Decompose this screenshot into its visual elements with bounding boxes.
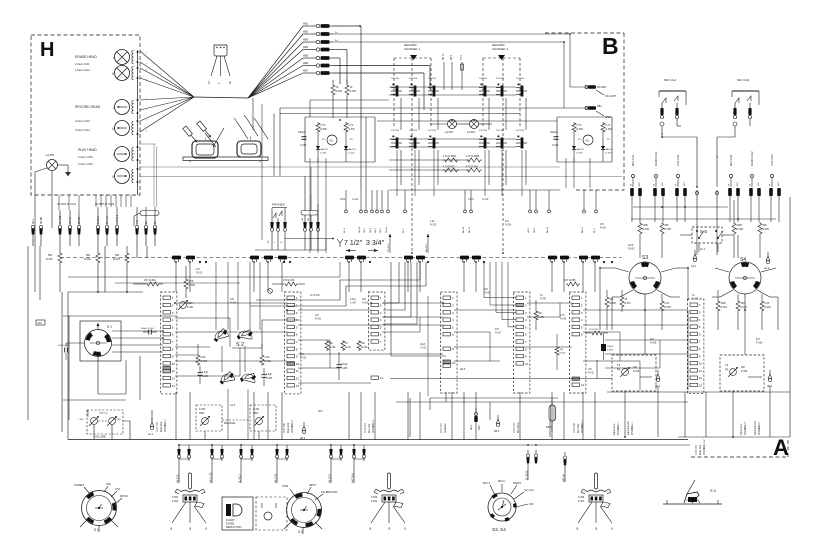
svg-text:P-309: P-309 — [741, 371, 748, 373]
svg-text:4 trac H 102: 4 trac H 102 — [75, 68, 90, 72]
svg-text:AB-14: AB-14 — [462, 226, 465, 233]
svg-text:R-332: R-332 — [560, 353, 567, 355]
svg-text:33K: 33K — [665, 224, 670, 227]
svg-text:0.047: 0.047 — [468, 199, 474, 201]
svg-text:R-359: R-359 — [577, 129, 584, 131]
svg-text:AB-7: AB-7 — [318, 410, 324, 413]
svg-text:5K R-345: 5K R-345 — [589, 329, 599, 331]
svg-text:2.7K: 2.7K — [321, 125, 326, 127]
svg-text:Input Selector: Input Selector — [754, 421, 757, 435]
svg-text:F-501: F-501 — [172, 496, 179, 499]
svg-text:AB-5: AB-5 — [546, 426, 552, 429]
svg-text:1K R-320: 1K R-320 — [310, 295, 320, 297]
svg-text:470μF: 470μF — [341, 364, 348, 366]
svg-text:VU: VU — [585, 139, 589, 143]
svg-text:AB-9 BL: AB-9 BL — [176, 473, 179, 483]
svg-text:L-31: L-31 — [137, 219, 139, 224]
svg-text:HA LIGHT: HA LIGHT — [605, 95, 616, 98]
svg-text:BL-4: BL-4 — [344, 228, 346, 233]
svg-text:560: 560 — [115, 254, 120, 257]
svg-text:(O) (1O): (O) (1O) — [524, 488, 534, 492]
svg-text:I: I — [113, 56, 114, 60]
svg-text:R-327: R-327 — [495, 333, 502, 335]
svg-text:Rec Amp: Rec Amp — [577, 423, 580, 433]
svg-text:150μF: 150μF — [607, 346, 614, 348]
svg-text:1K: 1K — [350, 86, 353, 89]
svg-text:AB-13 M: AB-13 M — [274, 474, 277, 483]
svg-text:4.7K R-507: 4.7K R-507 — [443, 167, 455, 169]
svg-text:CHANNEL 2: CHANNEL 2 — [372, 419, 375, 433]
svg-text:1500: 1500 — [340, 199, 346, 201]
svg-text:F-503: F-503 — [371, 496, 378, 499]
svg-text:NOISE: NOISE — [226, 522, 234, 526]
svg-text:R-365: R-365 — [610, 303, 617, 305]
svg-text:RECORD HEAD: RECORD HEAD — [75, 105, 101, 109]
svg-text:AA-119: AA-119 — [349, 148, 357, 151]
svg-text:2SC458: 2SC458 — [391, 130, 400, 132]
svg-text:R-360: R-360 — [606, 129, 613, 131]
svg-text:OUTPUT CH1: OUTPUT CH1 — [57, 202, 76, 206]
svg-text:S 2: S 2 — [298, 530, 303, 534]
svg-text:11: 11 — [699, 369, 702, 373]
svg-text:CHANNEL 2: CHANNEL 2 — [758, 421, 761, 435]
svg-text:CHANNEL 1: CHANNEL 1 — [164, 418, 167, 432]
svg-text:47K: 47K — [505, 221, 510, 223]
svg-text:10K: 10K — [230, 299, 235, 301]
svg-text:BN: BN — [596, 527, 598, 530]
svg-text:D-352: D-352 — [349, 153, 356, 155]
svg-text:2.7K: 2.7K — [577, 125, 582, 127]
svg-text:D-354: D-354 — [606, 153, 613, 155]
svg-text:47K: 47K — [196, 269, 201, 271]
svg-text:12: 12 — [172, 377, 176, 381]
svg-text:F-504: F-504 — [371, 500, 378, 503]
svg-text:C-305: C-305 — [266, 378, 273, 380]
svg-text:1.8K: 1.8K — [265, 356, 270, 359]
svg-text:470 R-306: 470 R-306 — [283, 279, 295, 282]
svg-text:1K: 1K — [625, 299, 628, 301]
svg-text:LA 551: LA 551 — [46, 153, 55, 157]
svg-text:TAPE: TAPE — [282, 485, 289, 488]
svg-text:R-365: R-365 — [765, 307, 772, 309]
svg-text:R-369: R-369 — [756, 343, 763, 345]
svg-text:47K R-356: 47K R-356 — [564, 279, 576, 282]
svg-text:I-077-710: I-077-710 — [441, 422, 443, 433]
svg-text:AU-1: AU-1 — [736, 182, 739, 186]
svg-text:RH-B3: RH-B3 — [79, 216, 81, 224]
svg-text:2 trac H 101: 2 trac H 101 — [75, 62, 90, 66]
svg-text:250k: 250k — [199, 412, 205, 415]
svg-text:CH-A3: CH-A3 — [69, 216, 72, 224]
svg-text:R-367: R-367 — [625, 303, 632, 305]
svg-text:7 1/2": 7 1/2" — [344, 240, 363, 247]
svg-text:b: b — [146, 120, 147, 122]
svg-text:AUX CH2: AUX CH2 — [770, 154, 774, 166]
svg-text:10: 10 — [296, 362, 300, 366]
svg-text:HB-6: HB-6 — [534, 227, 536, 233]
svg-text:AA-11 RE: AA-11 RE — [209, 472, 212, 483]
svg-text:OUTPUT CH2: OUTPUT CH2 — [95, 202, 114, 206]
svg-text:C-306: C-306 — [341, 368, 348, 370]
svg-text:AA-5: AA-5 — [230, 404, 236, 407]
svg-text:10μF: 10μF — [420, 344, 426, 346]
svg-text:F-307: F-307 — [578, 500, 585, 503]
svg-text:HB-9: HB-9 — [370, 227, 372, 233]
svg-text:D-353: D-353 — [577, 153, 584, 155]
svg-text:33K: 33K — [741, 303, 746, 305]
svg-text:CH1: CH1 — [115, 488, 121, 491]
svg-text:4.7K R-506A: 4.7K R-506A — [443, 155, 457, 158]
svg-text:S4: S4 — [740, 257, 746, 263]
svg-text:AU-1: AU-1 — [661, 182, 664, 186]
svg-text:BL-3: BL-3 — [594, 228, 596, 233]
svg-text:2SC458: 2SC458 — [428, 130, 437, 132]
svg-text:2.7K: 2.7K — [349, 125, 354, 127]
svg-text:BN: BN — [190, 527, 192, 530]
svg-text:II: II — [112, 175, 114, 179]
svg-text:AB 10: AB 10 — [442, 53, 445, 60]
svg-text:BY: BY — [146, 220, 148, 224]
svg-text:Repr Amp: Repr Amp — [287, 422, 290, 433]
svg-text:R-353: R-353 — [350, 90, 357, 93]
svg-text:R-307: R-307 — [201, 360, 208, 363]
svg-text:10K: 10K — [633, 367, 638, 369]
svg-text:AB-6: AB-6 — [460, 368, 466, 371]
svg-text:C-312: C-312 — [420, 348, 427, 350]
svg-text:P-302: P-302 — [115, 419, 122, 421]
svg-text:3 3/4": 3 3/4" — [366, 240, 385, 247]
svg-text:12: 12 — [296, 377, 300, 381]
svg-text:2SC458: 2SC458 — [496, 78, 505, 80]
svg-text:AB-40 8: AB-40 8 — [425, 243, 428, 252]
svg-text:AA-119: AA-119 — [606, 148, 614, 151]
svg-text:47K: 47K — [315, 315, 320, 317]
svg-text:AB-4: AB-4 — [494, 430, 500, 433]
svg-text:REDUCTION: REDUCTION — [226, 525, 242, 529]
svg-text:MIC CH2: MIC CH2 — [729, 154, 733, 166]
svg-text:DOLBY: DOLBY — [226, 518, 235, 522]
svg-text:2SC458: 2SC458 — [496, 130, 505, 132]
svg-text:1500μF: 1500μF — [298, 132, 306, 134]
svg-text:2SC458: 2SC458 — [391, 78, 400, 80]
svg-text:R-344: R-344 — [538, 317, 545, 319]
svg-text:AA-119: AA-119 — [321, 148, 329, 151]
svg-text:S 5: S 5 — [710, 489, 716, 493]
svg-text:2SC458: 2SC458 — [479, 78, 488, 80]
svg-text:CS-42 4: CS-42 4 — [388, 243, 390, 252]
svg-text:0.022: 0.022 — [350, 299, 356, 301]
svg-text:BT-A4-1: BT-A4-1 — [106, 215, 109, 224]
svg-text:250k: 250k — [253, 412, 259, 415]
svg-text:RADIO: RADIO — [513, 481, 521, 485]
svg-text:R-331: R-331 — [588, 373, 595, 375]
svg-text:P-304: P-304 — [253, 408, 260, 411]
svg-text:CHANNEL 1: CHANNEL 1 — [631, 421, 634, 435]
svg-text:220K: 220K — [643, 224, 649, 227]
svg-text:BD: BD — [370, 527, 372, 530]
svg-text:C-302: C-302 — [552, 145, 559, 147]
svg-text:MIC CH1: MIC CH1 — [631, 154, 635, 166]
svg-text:500k log: 500k log — [99, 413, 108, 415]
svg-text:12: 12 — [581, 383, 585, 387]
svg-text:HB7: HB7 — [303, 69, 309, 73]
svg-text:R-350: R-350 — [321, 129, 328, 131]
svg-text:OFF: OFF — [106, 483, 111, 486]
svg-text:LA 502: LA 502 — [445, 131, 453, 134]
svg-text:HB-10: HB-10 — [359, 226, 361, 233]
svg-text:AA-119: AA-119 — [577, 148, 585, 151]
svg-text:680μF C-301: 680μF C-301 — [141, 328, 155, 330]
svg-text:CHANNEL 1: CHANNEL 1 — [617, 421, 620, 435]
svg-text:b: b — [146, 109, 147, 111]
svg-text:DIN: DIN — [529, 502, 534, 506]
svg-text:HB5: HB5 — [303, 54, 309, 58]
svg-text:b: b — [146, 64, 147, 66]
svg-text:b: b — [146, 99, 147, 101]
svg-text:VU: VU — [329, 139, 333, 143]
svg-text:Oscillator: Oscillator — [444, 423, 447, 433]
svg-text:C-351: C-351 — [300, 145, 307, 147]
svg-text:ERASE HEAD: ERASE HEAD — [75, 55, 97, 59]
svg-text:CHANNEL 2: CHANNEL 2 — [744, 421, 747, 435]
svg-text:R-303: R-303 — [113, 258, 120, 261]
svg-text:I-077-718: I-077-718 — [365, 422, 367, 433]
svg-text:C-307: C-307 — [350, 303, 357, 305]
svg-text:HA-A3B: HA-A3B — [59, 215, 62, 224]
svg-text:play: play — [250, 136, 252, 140]
svg-text:F 5 1: F 5 1 — [461, 54, 463, 60]
svg-text:4.7K R-506B: 4.7K R-506B — [466, 156, 480, 158]
svg-text:10: 10 — [525, 362, 529, 366]
svg-text:4.7K R-508: 4.7K R-508 — [466, 167, 478, 169]
svg-text:MIC 2: MIC 2 — [483, 481, 490, 485]
svg-text:560: 560 — [48, 254, 53, 257]
svg-text:R-319: R-319 — [361, 347, 368, 349]
svg-text:Rec Relay: Rec Relay — [518, 422, 520, 433]
svg-text:3.3μF: 3.3μF — [266, 374, 273, 376]
svg-text:CALIBRATION: CALIBRATION — [321, 491, 338, 494]
svg-text:AB-15 R: AB-15 R — [328, 474, 331, 483]
svg-text:BALANCE: BALANCE — [224, 422, 236, 425]
svg-text:4 trac H 106: 4 trac H 106 — [78, 162, 93, 166]
svg-text:H: H — [40, 39, 54, 61]
svg-text:INPUT: INPUT — [309, 484, 317, 487]
svg-text:I-077-708: I-077-708 — [574, 422, 576, 433]
svg-text:D-351: D-351 — [321, 153, 328, 155]
svg-text:R-324: R-324 — [505, 225, 512, 227]
svg-text:AB-17: AB-17 — [581, 226, 584, 233]
svg-text:R-302: R-302 — [84, 258, 91, 261]
svg-text:STEREO: STEREO — [74, 484, 84, 487]
svg-text:2SC458: 2SC458 — [409, 130, 418, 132]
svg-text:13: 13 — [699, 384, 703, 388]
svg-text:3.3μF: 3.3μF — [202, 372, 209, 374]
svg-text:AA-1: AA-1 — [148, 433, 154, 436]
svg-text:I-077-700: I-077-700 — [696, 444, 698, 455]
svg-text:HB3: HB3 — [303, 38, 309, 42]
svg-text:BL-N2 J: BL-N2 J — [238, 474, 241, 483]
svg-text:2.2K: 2.2K — [765, 303, 770, 305]
svg-text:11: 11 — [296, 369, 299, 373]
svg-text:47K: 47K — [495, 329, 500, 331]
svg-text:4.7K: 4.7K — [560, 315, 565, 317]
svg-text:4.7K: 4.7K — [189, 280, 194, 283]
svg-text:CHANNEL 1: CHANNEL 1 — [404, 47, 421, 51]
svg-text:BT-B3-2: BT-B3-2 — [98, 215, 100, 224]
svg-text:13: 13 — [172, 384, 176, 388]
svg-text:1K: 1K — [336, 86, 339, 89]
svg-text:R-364: R-364 — [721, 307, 728, 309]
svg-text:BAT rel: BAT rel — [562, 474, 565, 482]
svg-text:HB-2: HB-2 — [380, 227, 382, 233]
svg-text:Repr Amp: Repr Amp — [699, 444, 702, 455]
svg-text:R-301: R-301 — [46, 258, 53, 261]
svg-text:Input Level: Input Level — [613, 423, 616, 435]
svg-text:P-308: P-308 — [633, 371, 640, 373]
svg-text:2SC458: 2SC458 — [479, 130, 488, 132]
svg-text:AA-2: AA-2 — [764, 267, 770, 270]
svg-text:S 1: S 1 — [94, 528, 99, 532]
svg-text:R-368: R-368 — [650, 343, 657, 345]
svg-text:I-077-703: I-077-703 — [157, 421, 159, 432]
svg-text:6.7K: 6.7K — [606, 125, 611, 127]
svg-text:2SC458: 2SC458 — [516, 130, 525, 132]
svg-text:CHANNEL 2: CHANNEL 2 — [492, 47, 509, 51]
svg-text:R-322: R-322 — [300, 358, 307, 360]
svg-text:2 trac H 103: 2 trac H 103 — [75, 119, 90, 123]
svg-text:AB 9: AB 9 — [450, 54, 453, 60]
svg-text:2SC458: 2SC458 — [428, 78, 437, 80]
svg-text:R-400: R-400 — [763, 228, 770, 231]
svg-text:220K: 220K — [628, 245, 634, 247]
svg-text:1K: 1K — [692, 295, 695, 297]
svg-text:VOLUME: VOLUME — [94, 435, 106, 439]
svg-text:R-361: R-361 — [600, 228, 607, 230]
svg-text:mH-AV-2: mH-AV-2 — [116, 214, 119, 224]
svg-text:AUX CH1: AUX CH1 — [676, 154, 680, 166]
svg-text:I-077-740: I-077-740 — [284, 422, 286, 433]
svg-text:6.8K: 6.8K — [201, 356, 206, 359]
svg-text:BN: BN — [389, 527, 391, 530]
svg-text:S3, S4: S3, S4 — [492, 527, 506, 532]
svg-text:47K: 47K — [600, 224, 605, 226]
svg-text:II: II — [112, 127, 114, 131]
svg-text:S 1: S 1 — [107, 325, 112, 329]
svg-text:13: 13 — [296, 384, 300, 388]
svg-text:HB-1: HB-1 — [364, 227, 366, 233]
svg-text:R-323: R-323 — [430, 225, 437, 227]
svg-text:PHONES: PHONES — [272, 203, 285, 207]
svg-text:1K: 1K — [540, 295, 543, 297]
svg-text:MIC CH1: MIC CH1 — [664, 78, 677, 82]
svg-text:HB-4a: HB-4a — [386, 226, 388, 233]
svg-text:2SC458: 2SC458 — [409, 78, 418, 80]
svg-text:250K: 250K — [187, 302, 193, 305]
svg-text:560: 560 — [86, 254, 91, 257]
svg-text:10: 10 — [699, 362, 703, 366]
svg-text:BD: BD — [171, 527, 173, 530]
svg-text:HB2: HB2 — [303, 30, 309, 34]
svg-text:B: B — [602, 33, 619, 59]
svg-text:R-354: R-354 — [349, 129, 356, 131]
svg-text:AU-1: AU-1 — [638, 182, 641, 186]
svg-text:AD-2: AD-2 — [470, 424, 473, 430]
svg-text:6.3WV: 6.3WV — [607, 350, 614, 352]
svg-text:33K: 33K — [362, 299, 367, 301]
svg-text:2 trac H 105: 2 trac H 105 — [78, 155, 93, 159]
svg-text:4 trac H 104: 4 trac H 104 — [75, 128, 90, 132]
svg-text:AB-15: AB-15 — [468, 226, 471, 233]
svg-text:Input Selector: Input Selector — [627, 421, 630, 435]
svg-text:MIC H: MIC H — [498, 479, 505, 483]
svg-text:I: I — [113, 106, 114, 110]
svg-text:47K: 47K — [756, 339, 761, 341]
svg-text:2SC458: 2SC458 — [516, 78, 525, 80]
svg-text:2.2K: 2.2K — [430, 221, 435, 223]
svg-text:R-395: R-395 — [665, 228, 672, 231]
svg-text:R-363: R-363 — [741, 307, 748, 309]
svg-text:OSC: OSC — [479, 425, 481, 430]
svg-text:R-362: R-362 — [628, 249, 635, 251]
svg-text:HB-5: HB-5 — [528, 227, 530, 233]
svg-text:P-301: P-301 — [187, 306, 194, 309]
svg-text:47K: 47K — [650, 339, 655, 341]
svg-text:2.2K: 2.2K — [665, 303, 670, 305]
svg-text:RADIO CH1: RADIO CH1 — [654, 151, 658, 166]
svg-text:R-342: R-342 — [560, 319, 567, 321]
svg-text:R-341: R-341 — [540, 299, 547, 301]
svg-text:rec: rec — [205, 137, 207, 140]
svg-text:BAT 26 A: BAT 26 A — [351, 473, 354, 483]
svg-text:C-304: C-304 — [202, 376, 209, 378]
svg-text:HB6: HB6 — [303, 61, 309, 65]
svg-text:LA 503: LA 503 — [467, 131, 475, 134]
svg-text:I: I — [113, 153, 114, 157]
svg-text:MIC CH2: MIC CH2 — [737, 78, 750, 82]
svg-text:R-317: R-317 — [345, 347, 352, 349]
svg-text:10K: 10K — [741, 367, 746, 369]
svg-text:220K: 220K — [721, 303, 727, 305]
svg-text:AB-RB: AB-RB — [40, 217, 43, 224]
svg-text:II: II — [112, 72, 114, 76]
svg-text:R-313: R-313 — [196, 273, 203, 275]
svg-text:220K: 220K — [737, 224, 743, 227]
svg-text:10: 10 — [452, 361, 456, 365]
svg-text:R-325: R-325 — [362, 303, 369, 305]
svg-text:R-314: R-314 — [230, 303, 237, 305]
svg-text:BL-25 BL: BL-25 BL — [525, 469, 528, 480]
svg-text:P-303: P-303 — [199, 408, 206, 411]
svg-text:MONO: MONO — [120, 495, 128, 498]
svg-text:1500μF: 1500μF — [550, 132, 558, 134]
svg-text:AA-4: AA-4 — [691, 265, 697, 268]
svg-text:RY: RY — [155, 220, 157, 224]
svg-text:b: b — [146, 70, 147, 72]
svg-text:47K R-304: 47K R-304 — [144, 279, 156, 282]
svg-text:F-502: F-502 — [172, 500, 179, 503]
svg-text:R-311: R-311 — [265, 360, 272, 363]
svg-text:R-398: R-398 — [665, 307, 672, 309]
svg-text:HB-7: HB-7 — [375, 227, 377, 233]
svg-text:1K: 1K — [345, 343, 348, 345]
svg-text:A: A — [773, 435, 789, 460]
svg-text:33K: 33K — [763, 224, 768, 227]
svg-text:R-370: R-370 — [692, 299, 699, 301]
svg-text:1 500: 1 500 — [78, 419, 84, 421]
svg-text:AU-1: AU-1 — [683, 182, 686, 186]
svg-text:10K: 10K — [484, 289, 489, 291]
svg-text:b: b — [146, 80, 147, 82]
